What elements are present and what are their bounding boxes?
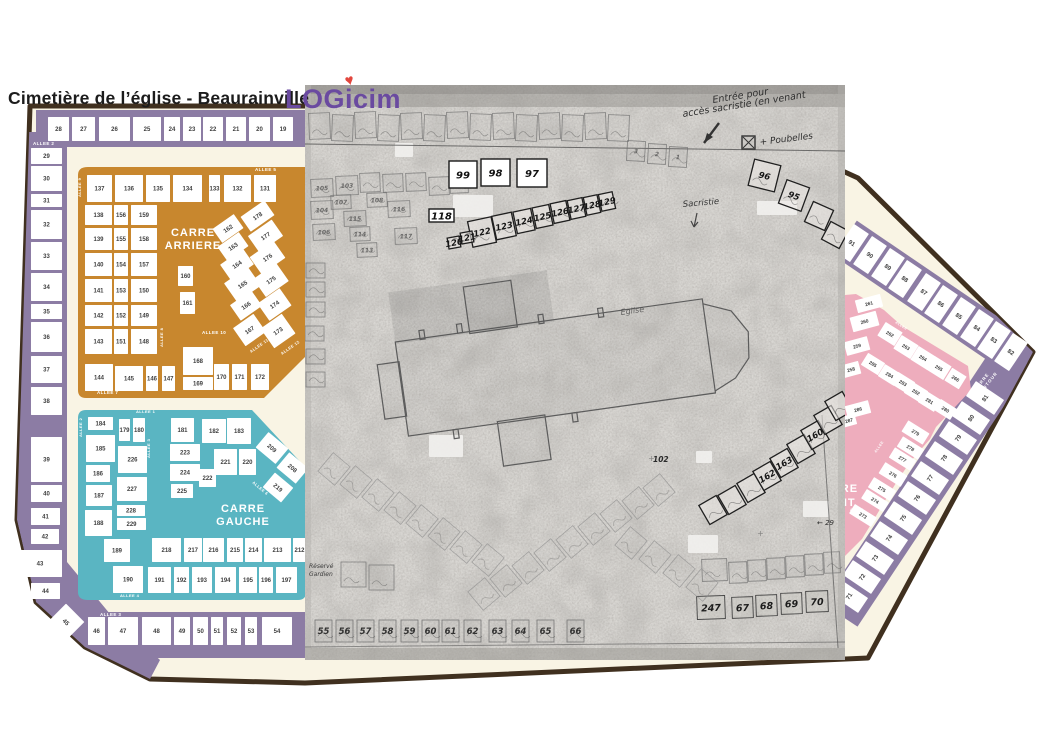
svg-text:3: 3: [634, 148, 639, 155]
plot-34[interactable]: 34: [31, 273, 62, 301]
scan-plot-98: 98: [481, 159, 510, 186]
plot-213[interactable]: 213: [264, 538, 291, 562]
svg-text:21: 21: [233, 127, 240, 133]
scan-plot: [562, 115, 584, 142]
alley-label: ALLEE 2: [78, 417, 83, 437]
scan-plot-1: 1: [668, 147, 687, 168]
plot-131[interactable]: 131: [254, 175, 276, 202]
plot-148[interactable]: 148: [131, 329, 157, 354]
plot-222[interactable]: 222: [199, 469, 216, 487]
scan-plot: [401, 113, 423, 140]
plot-160[interactable]: 160: [178, 266, 193, 286]
plot-158[interactable]: 158: [131, 228, 157, 250]
scan-plot: [493, 113, 515, 140]
plot-138[interactable]: 138: [85, 205, 112, 225]
svg-text:97: 97: [525, 169, 539, 180]
svg-text:152: 152: [116, 314, 127, 320]
svg-text:1: 1: [676, 154, 681, 161]
scan-plot-59: 59: [401, 620, 419, 642]
plot-35[interactable]: 35: [31, 304, 62, 319]
plot-31[interactable]: 31: [31, 194, 62, 207]
svg-text:62: 62: [467, 627, 479, 637]
svg-text:197: 197: [281, 578, 292, 584]
svg-text:168: 168: [193, 359, 204, 365]
plot-42[interactable]: 42: [31, 529, 59, 544]
scan-plot: [539, 113, 561, 140]
svg-text:116: 116: [393, 206, 406, 213]
scan-plot: [786, 556, 805, 578]
svg-text:51: 51: [214, 629, 221, 635]
plot-185[interactable]: 185: [86, 435, 115, 462]
plot-141[interactable]: 141: [85, 279, 112, 302]
plot-24[interactable]: 24: [164, 117, 180, 141]
plot-181[interactable]: 181: [171, 418, 194, 442]
plot-151[interactable]: 151: [114, 329, 128, 354]
svg-text:150: 150: [139, 289, 150, 295]
svg-text:19: 19: [280, 127, 287, 133]
svg-text:105: 105: [316, 185, 329, 192]
svg-text:229: 229: [126, 522, 137, 528]
scan-plot-61: 61: [442, 620, 460, 642]
svg-text:52: 52: [231, 629, 238, 635]
scan-plot-2: 2: [647, 144, 666, 165]
scan-plot: [360, 173, 381, 193]
svg-text:103: 103: [341, 183, 354, 190]
plot-135[interactable]: 135: [146, 175, 170, 202]
plot-170[interactable]: 170: [214, 364, 229, 390]
svg-text:227: 227: [127, 487, 138, 493]
scan-plot: [306, 349, 325, 364]
svg-text:169: 169: [193, 382, 204, 388]
plot-196[interactable]: 196: [259, 567, 273, 593]
svg-text:153: 153: [116, 289, 127, 295]
scan-plot: [309, 113, 331, 140]
plot-139[interactable]: 139: [85, 228, 112, 250]
plot-50[interactable]: 50: [193, 617, 208, 645]
scan-plot: [824, 552, 843, 574]
plot-48[interactable]: 48: [142, 617, 171, 645]
plot-39[interactable]: 39: [31, 437, 62, 482]
svg-text:57: 57: [360, 627, 372, 637]
scan-plot-70: 70: [806, 591, 829, 613]
plot-229[interactable]: 229: [117, 518, 146, 530]
plot-161[interactable]: 161: [180, 292, 195, 314]
plot-216[interactable]: 216: [203, 538, 224, 562]
plot-136[interactable]: 136: [115, 175, 143, 202]
svg-text:28: 28: [55, 127, 62, 133]
svg-text:182: 182: [209, 429, 220, 435]
label-carre-gauche-2: GAUCHE: [216, 516, 270, 528]
plot-20[interactable]: 20: [249, 117, 270, 141]
plot-182[interactable]: 182: [202, 419, 226, 443]
svg-text:138: 138: [93, 213, 104, 219]
plot-183[interactable]: 183: [227, 418, 251, 444]
plot-149[interactable]: 149: [131, 305, 157, 326]
svg-text:37: 37: [43, 368, 50, 374]
plot-30[interactable]: 30: [31, 166, 62, 191]
label-carre-arriere-2: ARRIERE: [165, 240, 222, 252]
svg-text:185: 185: [95, 447, 106, 453]
plot-27[interactable]: 27: [72, 117, 95, 141]
svg-text:+: +: [757, 529, 764, 538]
plot-194[interactable]: 194: [215, 567, 236, 593]
alley-label: ALLEE 9: [77, 177, 82, 197]
plot-52[interactable]: 52: [227, 617, 241, 645]
alley-label: ALLEE 2: [33, 141, 54, 146]
scan-plot-108: 108: [367, 193, 387, 208]
svg-text:25: 25: [144, 127, 151, 133]
svg-text:218: 218: [161, 548, 172, 554]
svg-text:42: 42: [42, 535, 49, 541]
svg-text:46: 46: [93, 629, 100, 635]
svg-text:147: 147: [163, 377, 174, 383]
plot-137[interactable]: 137: [87, 175, 112, 202]
scan-plot: [355, 112, 377, 139]
scan-plot: [306, 263, 325, 278]
svg-text:133: 133: [209, 187, 220, 193]
plot-226[interactable]: 226: [118, 446, 147, 473]
scan-plot-117: 117: [395, 228, 418, 245]
plot-53[interactable]: 53: [245, 617, 257, 645]
plot-184[interactable]: 184: [88, 417, 113, 430]
scan-plot: [516, 115, 538, 142]
svg-text:190: 190: [123, 578, 134, 584]
svg-text:39: 39: [43, 458, 50, 464]
svg-text:56: 56: [339, 627, 351, 637]
scan-label-102: 102: [653, 455, 669, 464]
scan-plot-3: 3: [626, 141, 645, 162]
alley-label: ALLEE 4: [120, 593, 140, 598]
plot-215[interactable]: 215: [227, 538, 243, 562]
scan-plot-56: 56: [336, 620, 354, 642]
svg-text:49: 49: [179, 629, 186, 635]
scan-plot-55: 55: [315, 620, 333, 642]
plot-179[interactable]: 179: [119, 419, 130, 441]
plot-33[interactable]: 33: [31, 242, 62, 270]
svg-text:98: 98: [489, 168, 503, 179]
scan-plot: [429, 177, 450, 196]
plot-144[interactable]: 144: [85, 364, 113, 391]
svg-text:34: 34: [43, 285, 50, 291]
svg-text:54: 54: [274, 629, 281, 635]
svg-text:192: 192: [176, 578, 187, 584]
plot-155[interactable]: 155: [114, 228, 128, 250]
plot-147[interactable]: 147: [162, 366, 175, 391]
svg-text:223: 223: [180, 451, 191, 457]
plot-32[interactable]: 32: [31, 210, 62, 239]
plot-43[interactable]: 43: [18, 550, 62, 577]
svg-text:115: 115: [349, 216, 362, 223]
plot-169[interactable]: 169: [183, 377, 213, 390]
plot-190[interactable]: 190: [113, 566, 143, 593]
plot-157[interactable]: 157: [131, 253, 157, 276]
scan-plot-63: 63: [489, 620, 507, 642]
scan-plot-69: 69: [781, 593, 803, 615]
scan-plot-118: 118: [429, 209, 454, 222]
svg-text:99: 99: [456, 170, 470, 181]
svg-text:40: 40: [43, 492, 50, 498]
plot-217[interactable]: 217: [184, 538, 202, 562]
svg-text:145: 145: [124, 377, 135, 383]
scan-plot-113: 113: [357, 243, 377, 258]
scan-plot-65: 65: [537, 620, 555, 642]
svg-text:144: 144: [94, 376, 105, 382]
plot-153[interactable]: 153: [114, 279, 128, 302]
scan-note-gardien-1: Réservé: [309, 563, 334, 570]
svg-text:213: 213: [272, 548, 283, 554]
scan-overlay[interactable]: 3211051041061031151141131161171071089998…: [305, 85, 845, 660]
svg-text:228: 228: [126, 509, 137, 515]
plot-225[interactable]: 225: [171, 484, 193, 498]
svg-text:60: 60: [425, 627, 437, 637]
svg-text:33: 33: [43, 254, 50, 260]
plot-220[interactable]: 220: [239, 449, 256, 475]
plot-214[interactable]: 214: [245, 538, 262, 562]
svg-text:155: 155: [116, 237, 127, 243]
plot-140[interactable]: 140: [85, 253, 112, 276]
svg-text:156: 156: [116, 213, 127, 219]
plot-26[interactable]: 26: [99, 117, 130, 141]
scan-note-gardien-2: Gardien: [309, 571, 333, 578]
svg-text:217: 217: [188, 548, 199, 554]
scan-plot-66: 66: [567, 620, 585, 642]
svg-text:+: +: [648, 454, 655, 463]
svg-text:195: 195: [243, 578, 254, 584]
plot-172[interactable]: 172: [251, 364, 269, 390]
plot-159[interactable]: 159: [131, 205, 157, 225]
svg-text:225: 225: [177, 489, 188, 495]
scan-plot: [748, 560, 767, 582]
scan-plot: [383, 174, 404, 193]
scan-plot-64: 64: [512, 620, 530, 642]
svg-text:158: 158: [139, 237, 150, 243]
svg-text:136: 136: [124, 187, 135, 193]
svg-text:188: 188: [93, 521, 104, 527]
plot-192[interactable]: 192: [174, 567, 189, 593]
scan-plot: [447, 112, 469, 139]
scan-plot-68: 68: [756, 595, 778, 617]
svg-text:50: 50: [197, 629, 204, 635]
svg-text:44: 44: [42, 589, 49, 595]
plot-29[interactable]: 29: [31, 148, 62, 164]
plot-36[interactable]: 36: [31, 322, 62, 352]
plot-193[interactable]: 193: [192, 567, 212, 593]
plot-142[interactable]: 142: [85, 305, 112, 326]
scan-plot-115: 115: [344, 211, 367, 227]
plot-25[interactable]: 25: [133, 117, 161, 141]
scan-plot-124: 124: [513, 208, 535, 233]
svg-text:67: 67: [736, 603, 750, 614]
plot-145[interactable]: 145: [115, 366, 143, 391]
svg-text:216: 216: [208, 548, 219, 554]
svg-text:181: 181: [177, 428, 188, 434]
scan-plot-67: 67: [732, 597, 754, 619]
svg-text:180: 180: [134, 428, 145, 434]
alley-label: ALLEE 5: [255, 167, 276, 172]
scan-plot-99: 99: [449, 161, 477, 188]
plot-132[interactable]: 132: [224, 175, 251, 202]
scan-plot-62: 62: [464, 620, 482, 642]
logo-text-cim: cim: [353, 84, 401, 114]
svg-text:214: 214: [248, 548, 259, 554]
plot-40[interactable]: 40: [31, 485, 62, 502]
svg-text:212: 212: [294, 548, 305, 554]
plot-134[interactable]: 134: [173, 175, 202, 202]
scan-plot: [369, 565, 394, 590]
svg-text:215: 215: [230, 548, 241, 554]
plot-191[interactable]: 191: [148, 567, 171, 593]
scan-plot: [470, 114, 492, 141]
svg-text:114: 114: [354, 231, 367, 238]
plot-49[interactable]: 49: [174, 617, 190, 645]
svg-text:29: 29: [43, 154, 50, 160]
plot-143[interactable]: 143: [85, 329, 112, 354]
plot-19[interactable]: 19: [273, 117, 293, 141]
plot-168[interactable]: 168: [183, 347, 213, 375]
svg-text:27: 27: [80, 127, 87, 133]
plot-221[interactable]: 221: [214, 449, 237, 475]
svg-text:41: 41: [42, 515, 49, 521]
plot-133[interactable]: 133: [209, 175, 220, 202]
svg-text:117: 117: [400, 233, 414, 240]
svg-text:157: 157: [139, 263, 150, 269]
svg-text:139: 139: [93, 237, 104, 243]
plot-28[interactable]: 28: [48, 117, 69, 141]
svg-text:106: 106: [318, 229, 331, 236]
plot-41[interactable]: 41: [31, 508, 60, 525]
svg-text:161: 161: [182, 301, 193, 307]
scan-plot-116: 116: [388, 201, 411, 218]
plot-223[interactable]: 223: [170, 444, 200, 461]
plot-188[interactable]: 188: [85, 510, 112, 536]
svg-text:113: 113: [361, 247, 374, 254]
scan-plot-103: 103: [336, 176, 359, 196]
plot-197[interactable]: 197: [276, 567, 297, 593]
plot-22[interactable]: 22: [203, 117, 223, 141]
svg-text:55: 55: [318, 627, 330, 637]
scan-plot-106: 106: [313, 224, 336, 241]
plot-224[interactable]: 224: [170, 464, 200, 481]
svg-text:53: 53: [248, 629, 255, 635]
svg-text:70: 70: [810, 597, 824, 608]
scan-plot: [332, 115, 354, 142]
plot-227[interactable]: 227: [117, 477, 147, 501]
plot-180[interactable]: 180: [133, 418, 145, 442]
svg-text:24: 24: [169, 127, 176, 133]
scan-plot: [424, 115, 446, 142]
scan-label-29: ← 29: [817, 519, 835, 527]
svg-text:196: 196: [261, 578, 272, 584]
svg-text:64: 64: [515, 627, 527, 637]
svg-text:30: 30: [43, 177, 50, 183]
svg-text:31: 31: [43, 199, 50, 205]
plot-37[interactable]: 37: [31, 356, 62, 383]
plot-44[interactable]: 44: [31, 583, 60, 599]
svg-text:26: 26: [111, 127, 118, 133]
svg-text:58: 58: [382, 627, 394, 637]
app-canvas: 2827262524232221201929303132333435363738…: [0, 0, 1040, 740]
svg-text:108: 108: [371, 197, 384, 204]
svg-text:193: 193: [197, 578, 208, 584]
svg-text:160: 160: [180, 274, 191, 280]
svg-text:191: 191: [154, 578, 165, 584]
plot-154[interactable]: 154: [114, 253, 128, 276]
plot-46[interactable]: 46: [88, 617, 105, 645]
plot-152[interactable]: 152: [114, 305, 128, 326]
svg-text:247: 247: [701, 603, 722, 615]
svg-text:151: 151: [116, 340, 127, 346]
plot-150[interactable]: 150: [131, 279, 157, 302]
svg-text:226: 226: [127, 458, 138, 464]
plot-23[interactable]: 23: [183, 117, 201, 141]
plot-38[interactable]: 38: [31, 387, 62, 415]
scan-plot-123: 123: [492, 212, 517, 240]
plot-51[interactable]: 51: [211, 617, 223, 645]
alley-label: ALLEE 3: [146, 438, 151, 458]
scan-plot: [585, 113, 607, 140]
plot-187[interactable]: 187: [86, 485, 112, 506]
svg-text:143: 143: [93, 340, 104, 346]
label-carre-arriere: CARRE: [171, 227, 215, 239]
alley-label: ALLEE 10: [202, 330, 226, 335]
svg-text:189: 189: [112, 549, 123, 555]
scan-plot-105: 105: [311, 179, 334, 198]
plot-146[interactable]: 146: [146, 366, 158, 391]
plot-189[interactable]: 189: [104, 539, 130, 562]
svg-text:131: 131: [260, 187, 271, 193]
plot-228[interactable]: 228: [117, 505, 145, 516]
plot-218[interactable]: 218: [152, 538, 181, 562]
page-title: Cimetière de l’église - Beaurainville: [8, 88, 309, 109]
svg-text:20: 20: [256, 127, 263, 133]
svg-text:141: 141: [93, 289, 104, 295]
plot-195[interactable]: 195: [239, 567, 257, 593]
scan-plot-97: 97: [517, 159, 547, 187]
svg-text:171: 171: [234, 375, 245, 381]
svg-text:148: 148: [139, 340, 150, 346]
svg-text:194: 194: [220, 578, 231, 584]
svg-text:66: 66: [570, 627, 582, 637]
plot-21[interactable]: 21: [226, 117, 246, 141]
svg-text:38: 38: [43, 399, 50, 405]
scan-plot: [767, 558, 786, 580]
plot-47[interactable]: 47: [108, 617, 138, 645]
svg-text:22: 22: [210, 127, 217, 133]
svg-text:142: 142: [93, 314, 104, 320]
svg-text:23: 23: [189, 127, 196, 133]
svg-text:68: 68: [760, 601, 774, 612]
scan-plot: [341, 562, 366, 587]
svg-text:118: 118: [431, 211, 452, 222]
svg-text:224: 224: [180, 471, 191, 477]
plot-54[interactable]: 54: [262, 617, 292, 645]
plot-186[interactable]: 186: [86, 465, 110, 482]
svg-text:137: 137: [94, 187, 105, 193]
svg-text:154: 154: [116, 263, 127, 269]
plot-171[interactable]: 171: [232, 364, 247, 390]
scan-plot-57: 57: [357, 620, 375, 642]
alley-label: ALLEE 3: [100, 612, 121, 617]
svg-text:170: 170: [216, 375, 227, 381]
alley-label: ALLEE 7: [97, 390, 118, 395]
plot-156[interactable]: 156: [114, 205, 128, 225]
label-carre-gauche: CARRE: [221, 503, 265, 515]
scan-plot-114: 114: [350, 227, 370, 242]
scan-plot-96: 96: [748, 159, 781, 192]
svg-text:221: 221: [220, 460, 231, 466]
scan-plot: [729, 562, 748, 584]
svg-text:222: 222: [202, 476, 213, 482]
